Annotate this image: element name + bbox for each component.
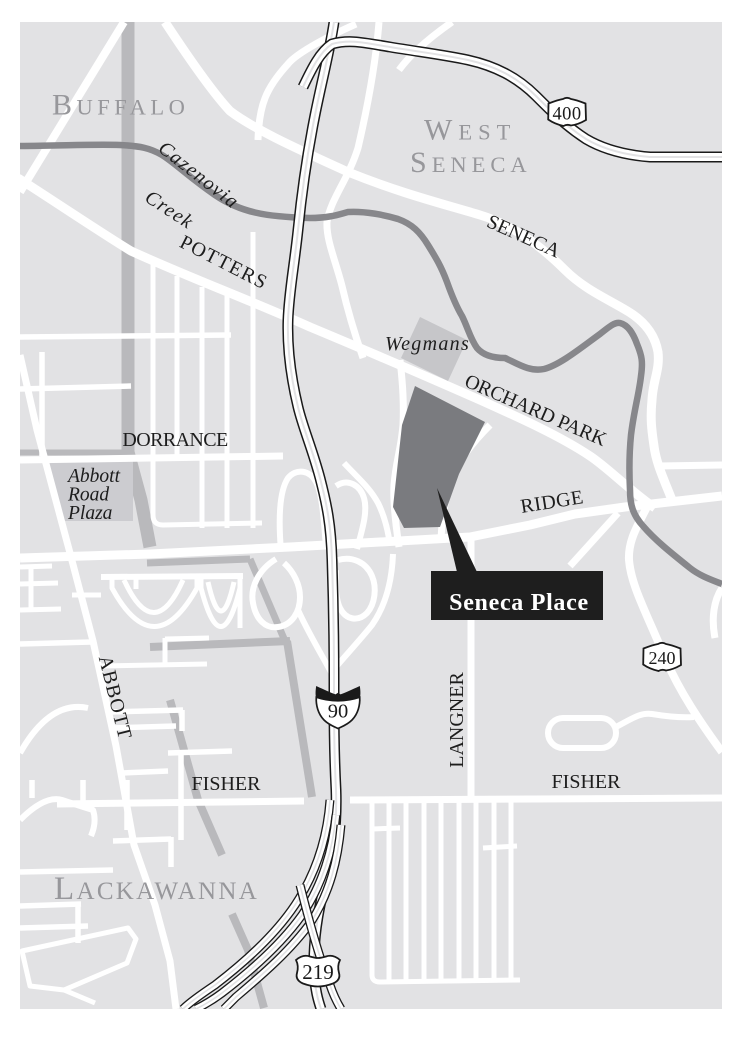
svg-text:240: 240: [649, 648, 676, 668]
svg-text:Plaza: Plaza: [67, 503, 113, 524]
svg-text:Seneca Place: Seneca Place: [449, 590, 589, 616]
svg-text:400: 400: [553, 105, 582, 125]
svg-text:90: 90: [328, 700, 349, 722]
svg-text:FISHER: FISHER: [192, 773, 262, 795]
svg-text:FISHER: FISHER: [552, 771, 622, 793]
svg-text:DORRANCE: DORRANCE: [122, 429, 228, 451]
svg-text:LANGNER: LANGNER: [446, 672, 468, 768]
svg-text:219: 219: [302, 960, 334, 984]
svg-text:Wegmans: Wegmans: [385, 333, 470, 355]
